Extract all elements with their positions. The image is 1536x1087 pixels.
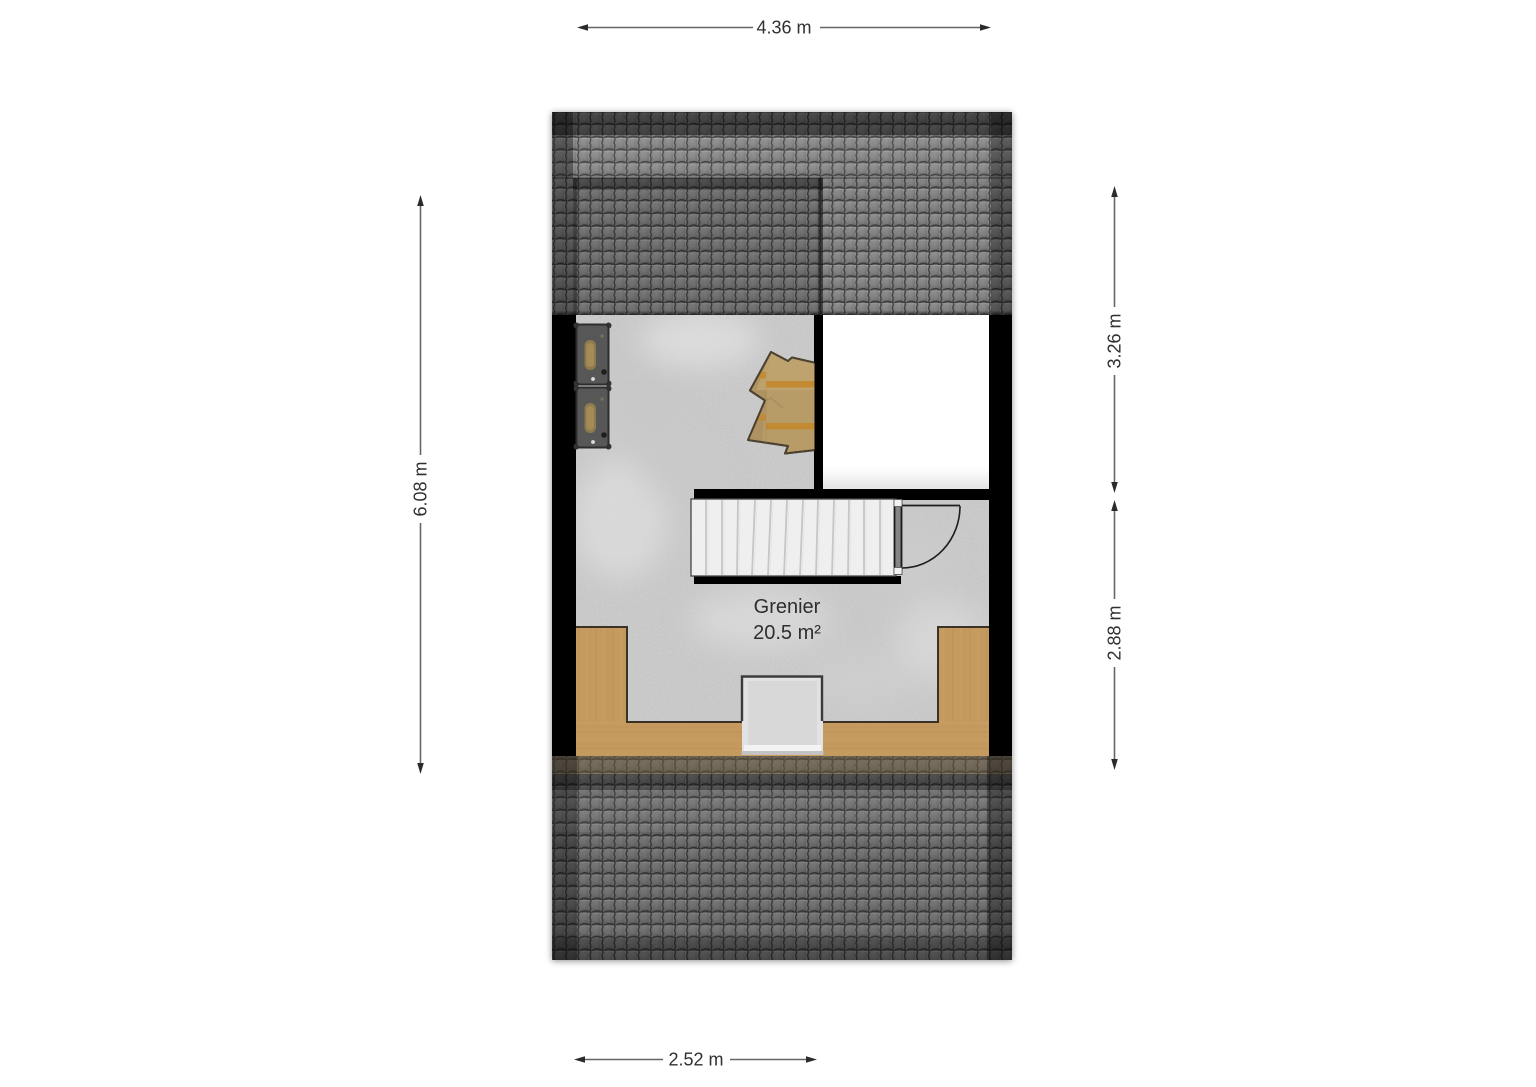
svg-text:4.36 m: 4.36 m (756, 18, 811, 38)
svg-text:2.52 m: 2.52 m (668, 1050, 723, 1070)
svg-text:20.5 m²: 20.5 m² (753, 622, 821, 644)
svg-text:6.08 m: 6.08 m (411, 461, 431, 516)
svg-text:2.88 m: 2.88 m (1105, 605, 1125, 660)
svg-text:Grenier: Grenier (754, 596, 821, 618)
svg-text:3.26 m: 3.26 m (1105, 313, 1125, 368)
